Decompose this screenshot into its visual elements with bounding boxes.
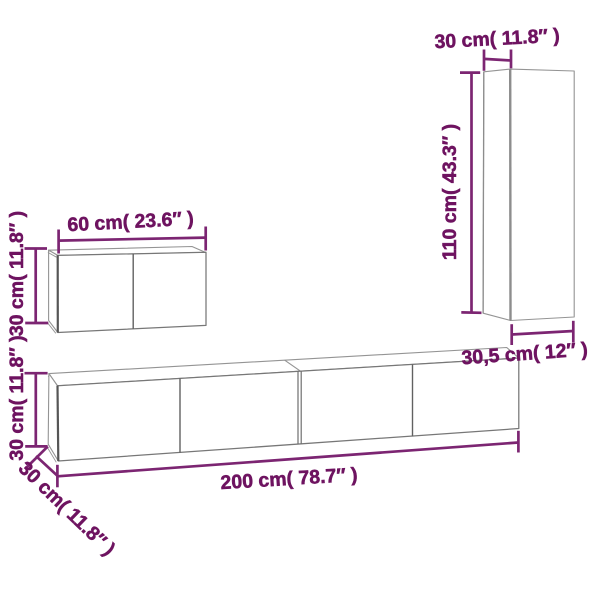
svg-text:110 cm( 43.3″ ): 110 cm( 43.3″ ): [439, 124, 461, 260]
svg-text:30 cm( 11.8″ ): 30 cm( 11.8″ ): [6, 211, 28, 336]
svg-text:30 cm( 11.8″ ): 30 cm( 11.8″ ): [6, 335, 28, 460]
